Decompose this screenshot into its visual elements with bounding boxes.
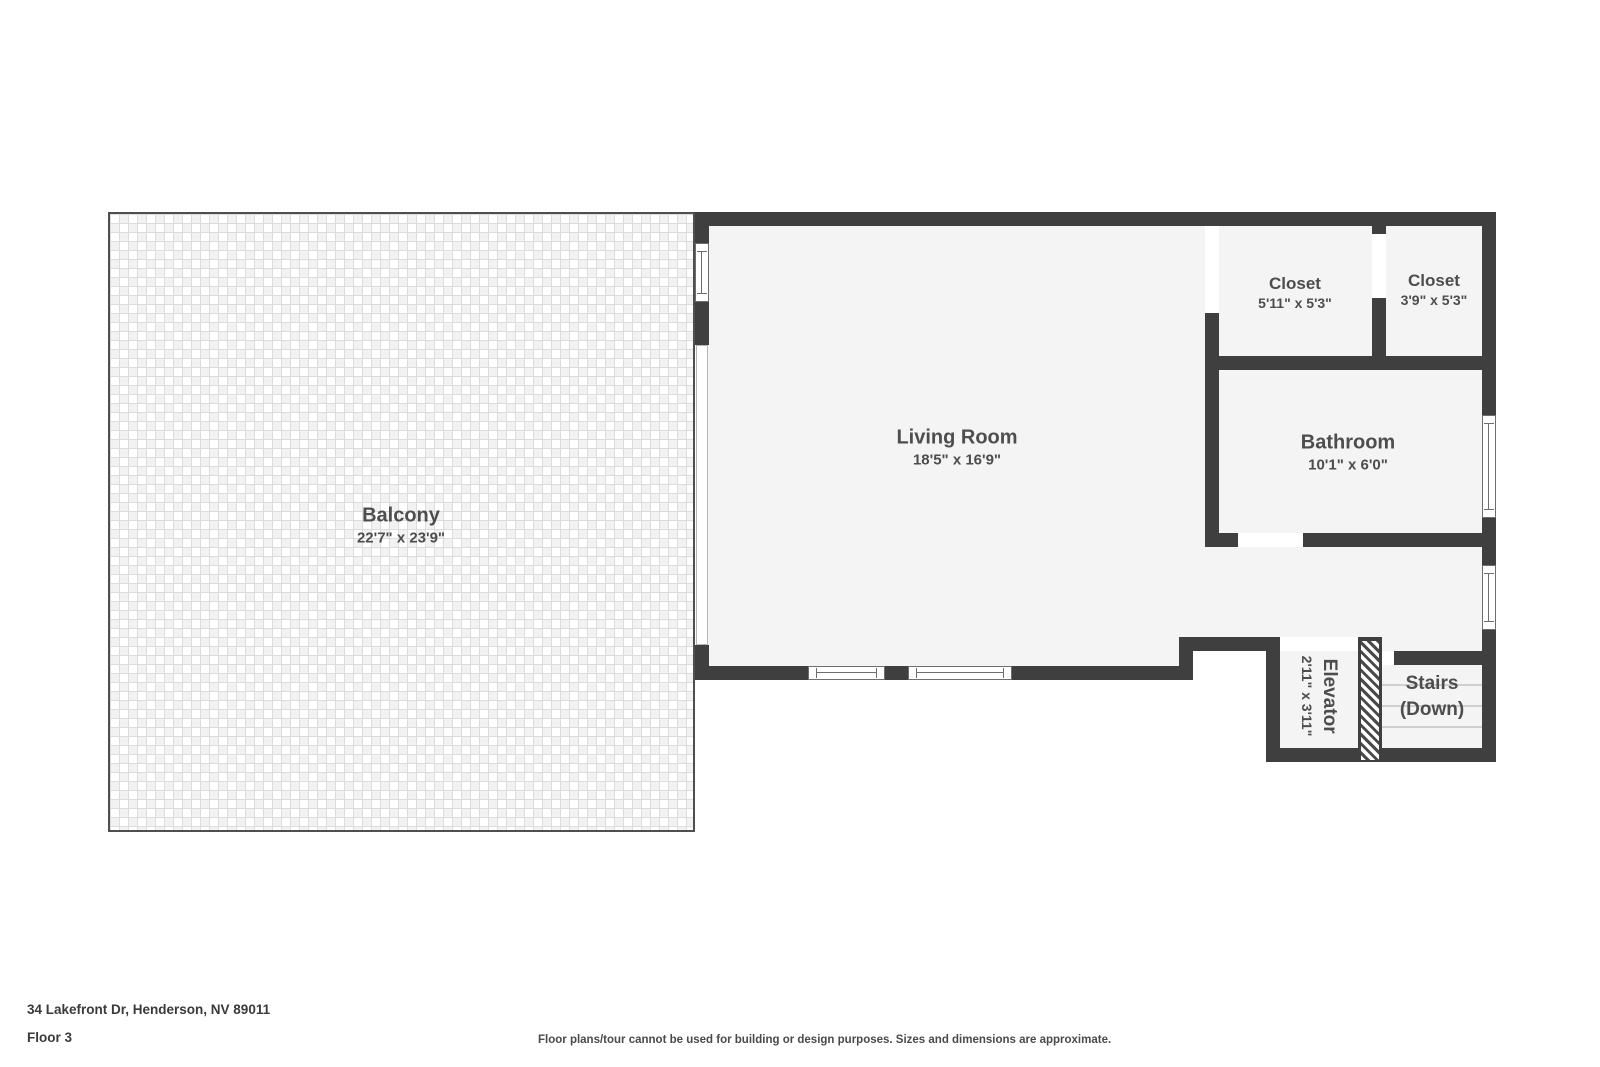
door-opening-elevator	[1280, 637, 1358, 651]
room-name: Elevator	[1317, 656, 1341, 737]
wall-stairs-top	[1394, 651, 1482, 665]
door-opening-bathroom	[1238, 533, 1303, 547]
window-icon	[695, 243, 709, 302]
room-dimensions: 5'11" x 5'3"	[1258, 294, 1332, 313]
room-dimensions: 3'9" x 5'3"	[1401, 291, 1468, 310]
wall-bathroom-top	[1205, 356, 1496, 370]
room-name: Closet	[1258, 273, 1332, 294]
room-dimensions: 10'1" x 6'0"	[1301, 455, 1395, 476]
wall-elevator-left	[1266, 637, 1280, 762]
wall-living-left-mid	[695, 302, 709, 345]
room-label-bathroom: Bathroom 10'1" x 6'0"	[1301, 431, 1395, 476]
room-name: Balcony	[357, 504, 445, 528]
room-name: Bathroom	[1301, 431, 1395, 455]
room-label-living-room: Living Room 18'5" x 16'9"	[896, 426, 1017, 471]
door-opening-closet-1	[1205, 226, 1219, 313]
wall-top	[695, 212, 1496, 226]
wall-notch-horizontal	[1179, 637, 1274, 651]
stair-step-line	[1382, 726, 1482, 728]
address-text: 34 Lakefront Dr, Henderson, NV 89011	[27, 1002, 270, 1017]
wall-living-left-upper	[695, 212, 709, 243]
sliding-door-icon	[696, 345, 708, 645]
room-name: Closet	[1401, 270, 1468, 291]
room-label-closet-2: Closet 3'9" x 5'3"	[1401, 270, 1468, 310]
door-opening-stairs	[1382, 651, 1394, 665]
room-name: Stairs	[1400, 671, 1464, 697]
wall-closet-divider-upper	[1372, 226, 1386, 234]
room-name: Living Room	[896, 426, 1017, 450]
floorplan-canvas: Balcony 22'7" x 23'9" Living Room 18'5" …	[0, 0, 1600, 1067]
room-dimensions: 22'7" x 23'9"	[357, 528, 445, 549]
wall-bathroom-bottom-right	[1303, 533, 1482, 547]
room-name-line2: (Down)	[1400, 697, 1464, 723]
wall-closet-divider-lower	[1372, 298, 1386, 356]
room-label-balcony: Balcony 22'7" x 23'9"	[357, 504, 445, 549]
room-label-closet-1: Closet 5'11" x 5'3"	[1258, 273, 1332, 313]
room-dimensions: 2'11" x 3'11"	[1297, 656, 1317, 737]
window-icon	[1482, 565, 1496, 630]
room-label-stairs: Stairs (Down)	[1400, 671, 1464, 723]
window-icon	[1482, 415, 1496, 518]
room-dimensions: 18'5" x 16'9"	[896, 450, 1017, 471]
room-label-elevator: Elevator 2'11" x 3'11"	[1297, 656, 1341, 737]
window-icon	[908, 666, 1012, 680]
wall-closet-living	[1205, 313, 1219, 547]
floor-number-text: Floor 3	[27, 1030, 72, 1045]
hatched-wall	[1358, 637, 1382, 762]
wall-bathroom-bottom-left	[1205, 533, 1238, 547]
disclaimer-text: Floor plans/tour cannot be used for buil…	[538, 1034, 1111, 1046]
window-icon	[808, 666, 885, 680]
door-opening-closet-2	[1372, 234, 1386, 298]
